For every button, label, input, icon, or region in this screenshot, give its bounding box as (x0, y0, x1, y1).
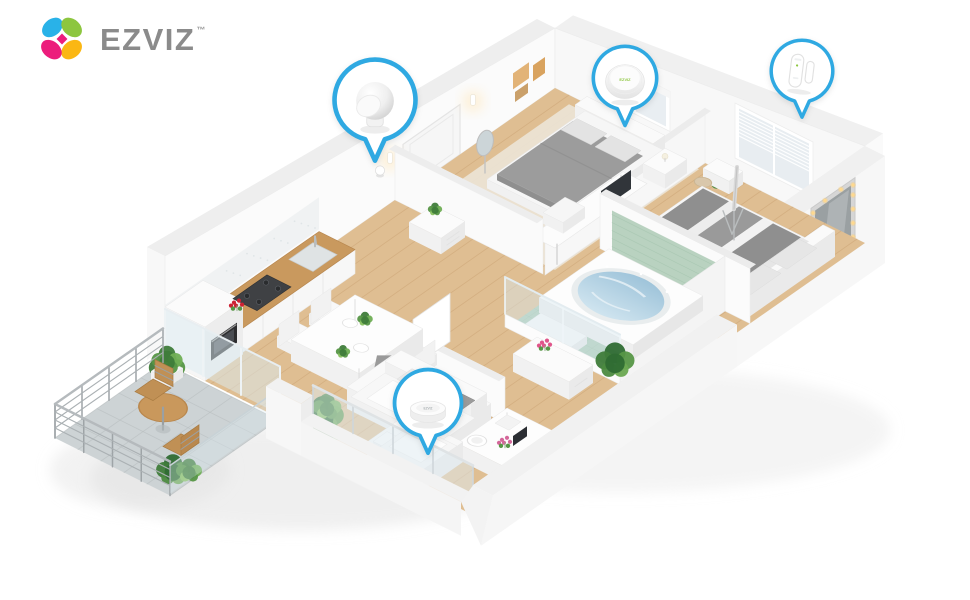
ezviz-logo-mark (36, 13, 88, 65)
brand-name: EZVIZ (100, 24, 195, 55)
callout-alarm-hub[interactable]: EZVIZ (589, 42, 661, 136)
brand-wordmark: EZVIZ™ (100, 24, 207, 55)
trademark-symbol: ™ (196, 26, 207, 35)
ezviz-smart-home-banner: EZVIZ™ EZVIZ (0, 0, 970, 600)
callout-door-sensor[interactable] (767, 36, 837, 127)
home-hub-icon: EZVIZ (411, 401, 446, 428)
callout-home-hub[interactable]: EZVIZ (390, 365, 466, 464)
ezviz-logo: EZVIZ™ (36, 13, 207, 65)
callout-motion-sensor[interactable] (329, 54, 421, 174)
hub-device-label: EZVIZ (423, 406, 432, 410)
hub-device-label: EZVIZ (619, 77, 631, 82)
logo-petals (37, 14, 86, 64)
